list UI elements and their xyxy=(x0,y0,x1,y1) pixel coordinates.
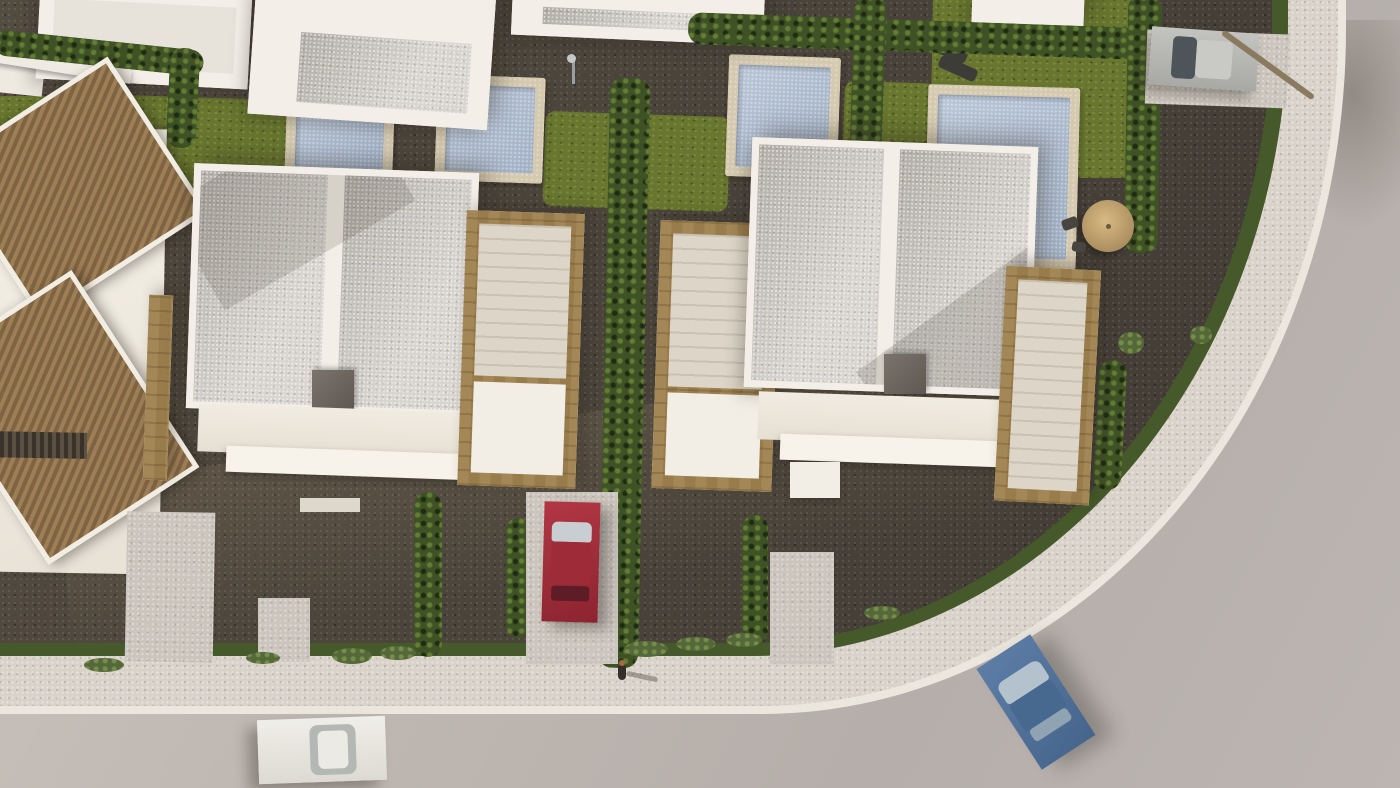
green-ball-shrub xyxy=(1118,332,1144,354)
wall-return xyxy=(828,564,838,612)
car-glass xyxy=(1171,36,1198,80)
bougainvillea xyxy=(604,412,622,438)
house-glazing xyxy=(100,318,130,446)
palm-tree xyxy=(1238,0,1400,150)
shrub xyxy=(513,425,537,469)
sidewalk-bush xyxy=(726,633,762,647)
shrub xyxy=(68,430,98,468)
pink-flower-bush xyxy=(1204,270,1234,296)
stair-steps xyxy=(474,223,571,378)
neighbor-roof-panel xyxy=(296,32,472,114)
paver xyxy=(728,80,754,95)
villa-a-glazed-doors xyxy=(262,471,333,497)
shrub xyxy=(722,404,748,456)
parasol-pole xyxy=(1106,224,1111,229)
stair-steps xyxy=(1008,279,1088,491)
outdoor-shower-head xyxy=(567,54,576,63)
bougainvillea xyxy=(596,356,616,386)
villa-b-roof-panel-left xyxy=(751,144,884,384)
green-ball-shrub xyxy=(1190,326,1212,344)
villa-b-window xyxy=(936,400,965,417)
sidewalk-bush xyxy=(624,641,668,657)
bougainvillea xyxy=(598,246,624,286)
palm-tree xyxy=(62,0,192,106)
house-window xyxy=(108,190,132,220)
villa-a-window xyxy=(396,416,423,433)
villa-a-window xyxy=(283,421,314,439)
sidewalk-bush xyxy=(676,637,716,651)
sidewalk-bush xyxy=(246,652,280,664)
bougainvillea xyxy=(606,300,628,334)
pink-flower-bush xyxy=(1140,368,1174,398)
palm-tree xyxy=(1246,500,1346,600)
purple-flower-bush xyxy=(1146,268,1180,298)
neighbor-villa xyxy=(247,0,496,130)
shrub xyxy=(688,412,714,460)
stepping-stone xyxy=(1096,184,1121,198)
flowering-tree xyxy=(842,6,942,98)
stepping-stone xyxy=(1120,180,1145,194)
wall-return xyxy=(762,568,772,618)
white-car xyxy=(257,716,387,784)
pink-flower-bush xyxy=(1172,390,1200,414)
villa-a-chimney xyxy=(312,370,354,410)
pedestrian-head xyxy=(619,660,625,666)
car-roof xyxy=(1195,39,1234,79)
villa-b-window xyxy=(820,407,851,425)
purple-flower-bush xyxy=(1088,262,1134,302)
wall-return xyxy=(206,596,216,646)
palm-tree xyxy=(492,540,612,660)
palm-tree xyxy=(60,585,170,695)
car-roof xyxy=(317,730,348,769)
shrub xyxy=(33,422,65,464)
bougainvillea-tree xyxy=(588,86,716,208)
villa-a-porch-step xyxy=(300,498,360,512)
villa-b-chimney xyxy=(884,354,926,394)
pedestrian xyxy=(618,664,626,680)
sidewalk-bush xyxy=(864,606,900,620)
scene xyxy=(0,0,1400,788)
palm-tree xyxy=(362,576,462,676)
shrub xyxy=(541,420,565,466)
stepping-stone xyxy=(1072,188,1097,202)
villa-a-glazed-doors xyxy=(382,467,459,494)
palm-tree xyxy=(902,470,1022,590)
villa-b-porch xyxy=(790,462,840,498)
